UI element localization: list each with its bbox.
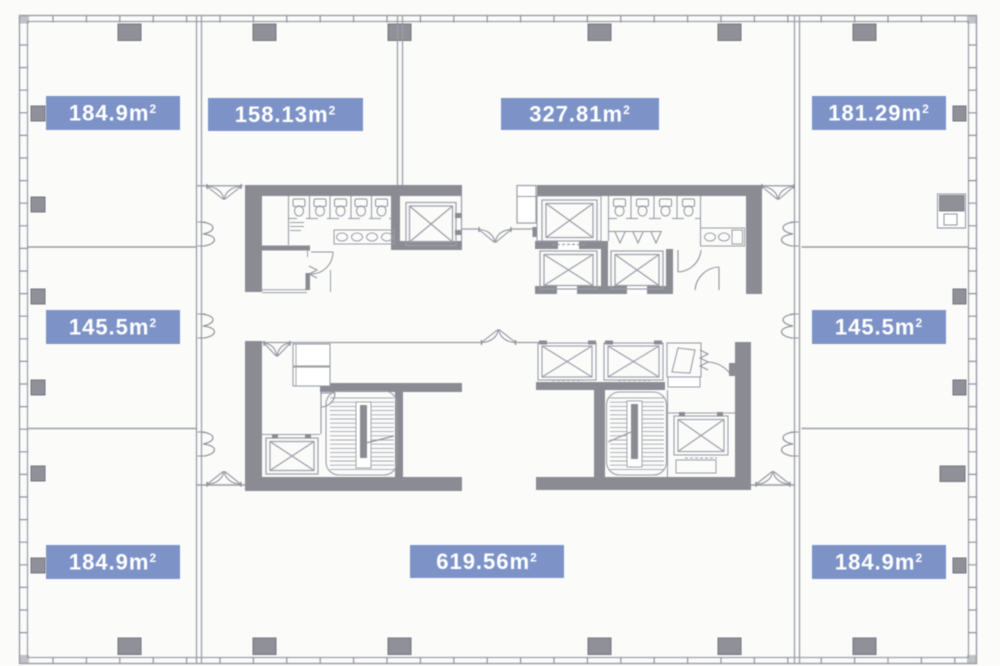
svg-text:158.13m2: 158.13m2 (235, 102, 337, 127)
svg-text:184.9m2: 184.9m2 (69, 550, 157, 575)
svg-text:327.81m2: 327.81m2 (529, 102, 631, 127)
svg-text:145.5m2: 145.5m2 (69, 315, 157, 340)
svg-text:619.56m2: 619.56m2 (436, 549, 538, 574)
svg-text:184.9m2: 184.9m2 (835, 550, 923, 575)
svg-text:181.29m2: 181.29m2 (828, 101, 930, 126)
svg-text:145.5m2: 145.5m2 (835, 315, 923, 340)
svg-text:184.9m2: 184.9m2 (69, 101, 157, 126)
